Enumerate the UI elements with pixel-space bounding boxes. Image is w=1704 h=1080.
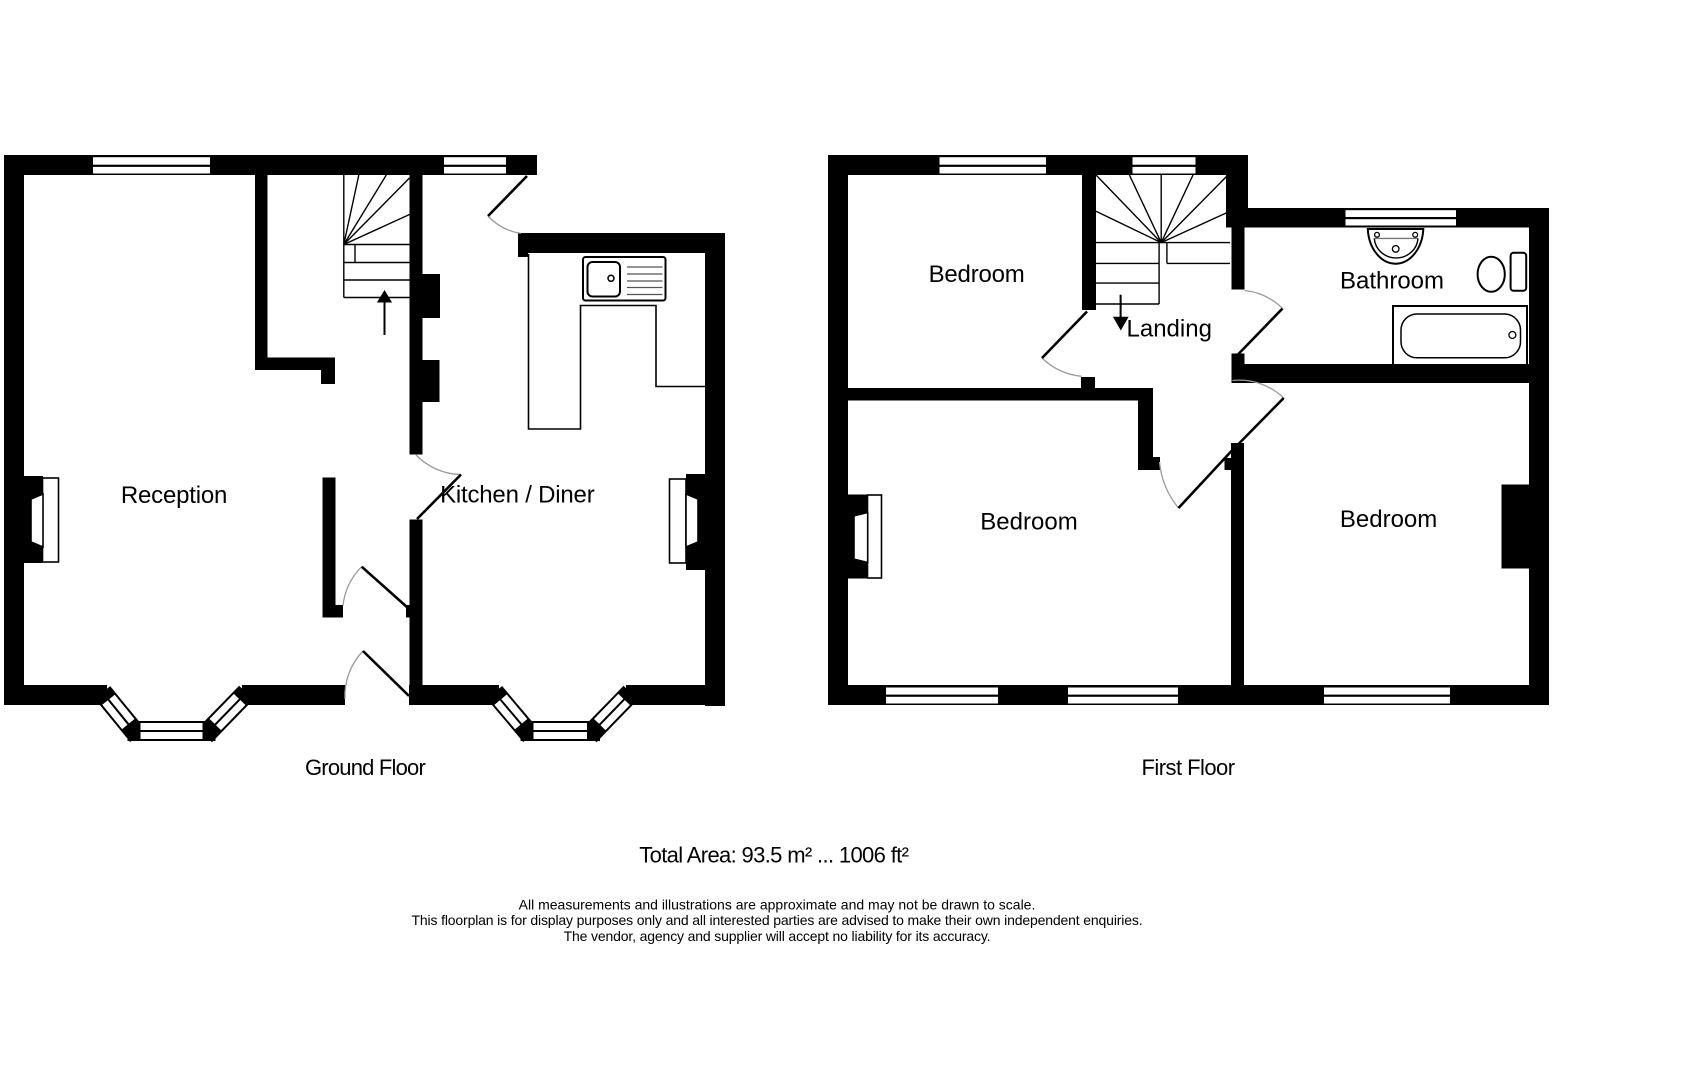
svg-text:Bedroom: Bedroom: [1340, 506, 1437, 533]
svg-text:Bedroom: Bedroom: [929, 261, 1025, 288]
svg-text:Bedroom: Bedroom: [980, 509, 1077, 536]
svg-text:Total Area: 93.5 m² ... 1006 f: Total Area: 93.5 m² ... 1006 ft²: [639, 843, 908, 868]
svg-text:This floorplan is for display: This floorplan is for display purposes o…: [412, 912, 1143, 928]
svg-text:Kitchen / Diner: Kitchen / Diner: [440, 482, 595, 509]
svg-text:Bathroom: Bathroom: [1340, 268, 1444, 295]
svg-text:Reception: Reception: [121, 482, 227, 509]
svg-text:The vendor, agency and supplie: The vendor, agency and supplier will acc…: [564, 928, 991, 944]
svg-text:All measurements and illustrat: All measurements and illustrations are a…: [519, 896, 1036, 912]
svg-text:Landing: Landing: [1127, 316, 1212, 343]
svg-text:First Floor: First Floor: [1142, 755, 1235, 780]
svg-text:Ground Floor: Ground Floor: [305, 755, 425, 780]
